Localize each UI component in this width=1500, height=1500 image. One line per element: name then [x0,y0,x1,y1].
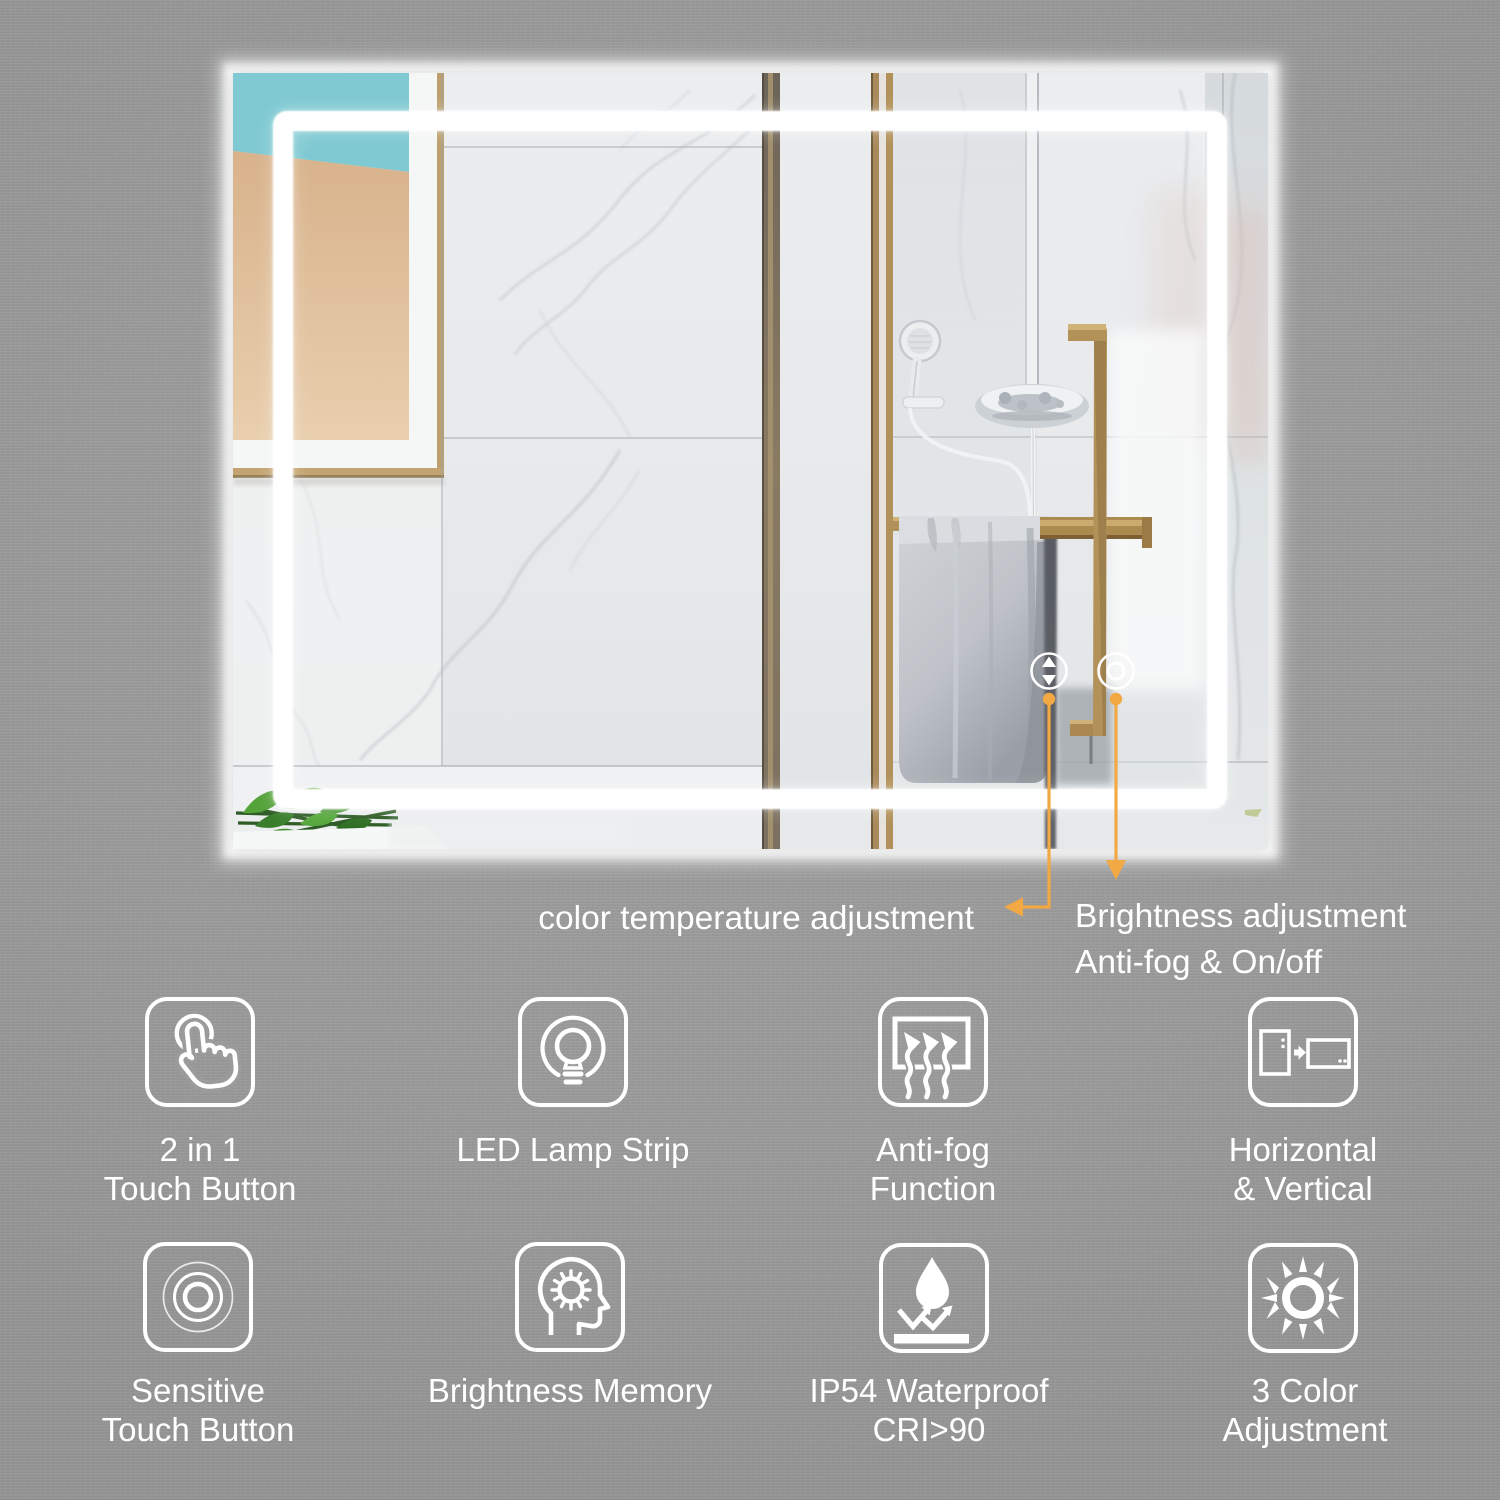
svg-text:Touch Button: Touch Button [104,1170,297,1207]
svg-text:Function: Function [870,1170,997,1207]
svg-text:Brightness adjustment: Brightness adjustment [1075,898,1407,935]
svg-text:Horizontal: Horizontal [1229,1131,1378,1168]
svg-text:& Vertical: & Vertical [1233,1170,1372,1207]
svg-text:LED Lamp Strip: LED Lamp Strip [457,1131,690,1168]
svg-text:Adjustment: Adjustment [1222,1411,1387,1448]
svg-text:2 in 1: 2 in 1 [160,1131,241,1168]
svg-text:Anti-fog: Anti-fog [876,1131,990,1168]
svg-text:color temperature adjustment: color temperature adjustment [538,900,974,937]
svg-text:3 Color: 3 Color [1252,1372,1358,1409]
svg-text:Anti-fog & On/off: Anti-fog & On/off [1075,944,1323,981]
svg-text:Sensitive: Sensitive [131,1372,265,1409]
svg-text:IP54 Waterproof: IP54 Waterproof [809,1372,1049,1409]
svg-text:Brightness Memory: Brightness Memory [428,1372,713,1409]
svg-text:CRI>90: CRI>90 [873,1411,986,1448]
svg-text:Touch Button: Touch Button [102,1411,295,1448]
